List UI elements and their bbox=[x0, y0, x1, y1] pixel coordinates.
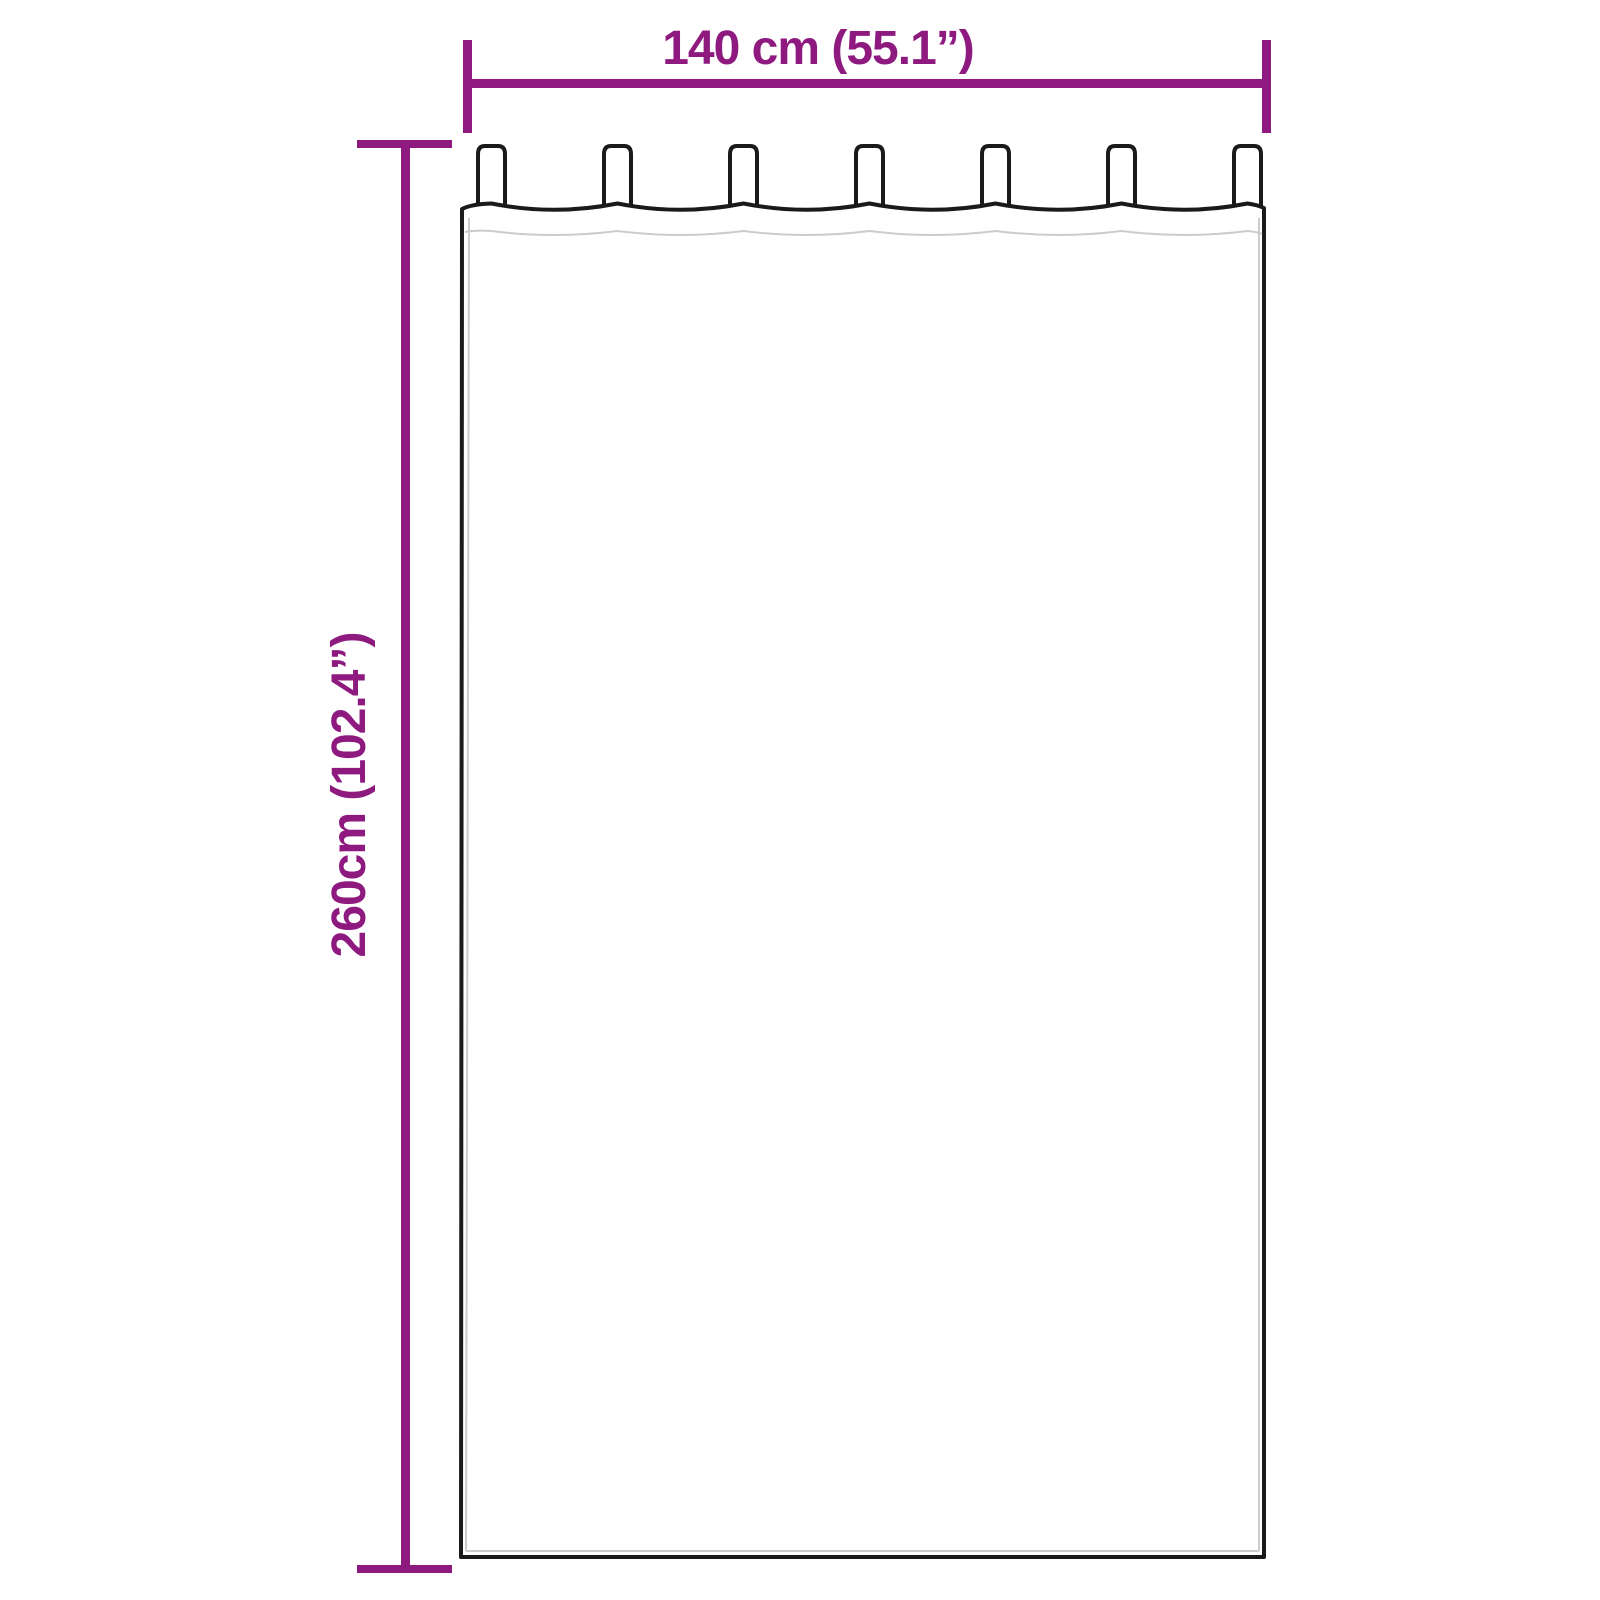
height-dimension-bottom-cap bbox=[357, 1565, 452, 1573]
width-dimension-right-cap bbox=[1262, 40, 1271, 133]
height-dimension-label: 260cm (102.4”) bbox=[326, 633, 374, 958]
curtain-panel bbox=[461, 204, 1264, 1558]
height-dimension-bar bbox=[401, 140, 410, 1573]
curtain-illustration bbox=[0, 0, 1600, 1600]
width-dimension-bar bbox=[463, 79, 1271, 88]
dimension-diagram: 140 cm (55.1”) 260cm (102.4”) bbox=[0, 0, 1600, 1600]
width-dimension-left-cap bbox=[463, 40, 472, 133]
width-dimension-label: 140 cm (55.1”) bbox=[662, 25, 974, 73]
height-dimension-top-cap bbox=[357, 140, 452, 148]
